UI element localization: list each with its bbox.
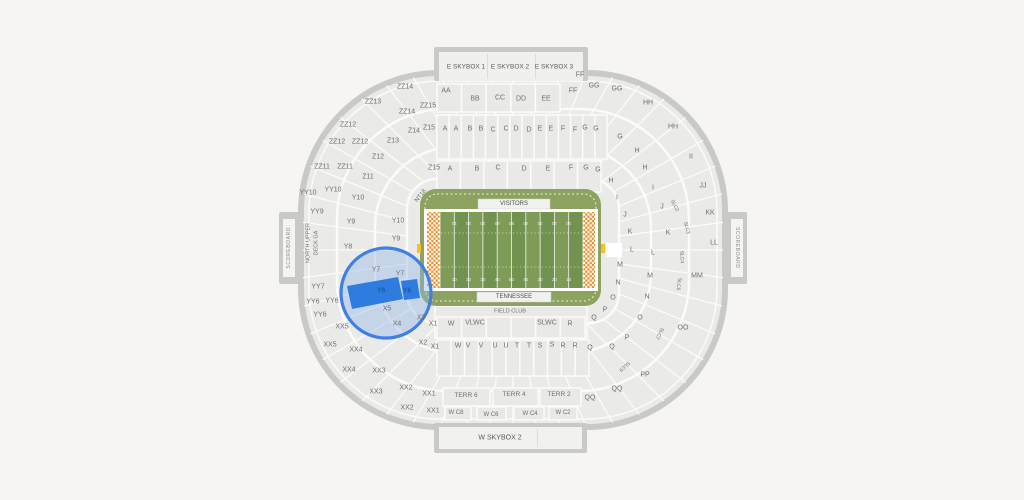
- section-label-f[interactable]: F: [561, 126, 565, 133]
- section-label-q[interactable]: Q: [591, 315, 596, 322]
- section-label-o[interactable]: O: [610, 295, 615, 302]
- section-label-hh[interactable]: HH: [643, 100, 653, 107]
- section-label-i[interactable]: I: [652, 185, 654, 192]
- section-label-xx2[interactable]: XX2: [399, 385, 412, 392]
- section-label-mm[interactable]: MM: [691, 273, 703, 280]
- section-label-p[interactable]: P: [603, 307, 608, 314]
- section-label-a[interactable]: A: [454, 126, 459, 133]
- section-label-yy10[interactable]: YY10: [299, 190, 316, 197]
- section-label-xx4[interactable]: XX4: [342, 367, 355, 374]
- section-label-y10[interactable]: Y10: [352, 195, 364, 202]
- section-label-g[interactable]: G: [595, 167, 600, 174]
- section-label-xx5[interactable]: XX5: [323, 342, 336, 349]
- section-label-vlwc[interactable]: VLWC: [465, 320, 485, 327]
- section-label-xx1[interactable]: XX1: [422, 391, 435, 398]
- section-label-z14[interactable]: Z14: [408, 128, 420, 135]
- section-label-m[interactable]: M: [617, 262, 623, 269]
- section-label-xx1[interactable]: XX1: [426, 408, 439, 415]
- section-label-o[interactable]: O: [637, 315, 642, 322]
- section-label-w[interactable]: W: [455, 343, 462, 350]
- section-label-a[interactable]: A: [443, 126, 448, 133]
- section-label-xx5[interactable]: XX5: [335, 324, 348, 331]
- section-label-b[interactable]: B: [475, 166, 480, 173]
- section-label-h[interactable]: H: [608, 178, 613, 185]
- section-label-slc3[interactable]: SLC3: [682, 221, 690, 234]
- section-label-oo[interactable]: OO: [678, 325, 689, 332]
- section-label-g[interactable]: G: [617, 134, 622, 141]
- section-label-n[interactable]: N: [644, 294, 649, 301]
- section-label-d[interactable]: D: [513, 126, 518, 133]
- section-label-zz14[interactable]: ZZ14: [397, 84, 413, 91]
- section-label-slc5[interactable]: SLC5: [675, 277, 682, 290]
- section-label-pp[interactable]: PP: [640, 372, 649, 379]
- section-label-x4[interactable]: X4: [393, 321, 402, 328]
- section-label-ii[interactable]: II: [689, 154, 693, 161]
- section-label-u[interactable]: U: [492, 343, 497, 350]
- section-label-p[interactable]: P: [625, 335, 630, 342]
- section-label-q[interactable]: Q: [587, 345, 592, 352]
- section-label-n[interactable]: N: [615, 280, 620, 287]
- section-label-gg[interactable]: GG: [589, 83, 600, 90]
- section-label-i[interactable]: I: [616, 195, 618, 202]
- seating-chart-stage: 101020203030404050504040303020201010 E S…: [0, 0, 1024, 500]
- section-label-slc9[interactable]: SLC9: [618, 360, 630, 372]
- section-label-w[interactable]: W: [448, 321, 455, 328]
- section-label-yy6[interactable]: YY6: [306, 299, 319, 306]
- section-labels-layer: ZZ14ZZ13ZZ14ZZ15ZZ12ZZ12ZZ12ZZ11ZZ11YY10…: [0, 0, 1024, 500]
- section-label-y8[interactable]: Y8: [344, 244, 353, 251]
- section-label-zz11[interactable]: ZZ11: [337, 164, 353, 171]
- section-label-r[interactable]: R: [572, 343, 577, 350]
- section-label-slc4[interactable]: SLC4: [678, 251, 683, 264]
- section-label-ff[interactable]: FF: [569, 88, 578, 95]
- section-label-x1[interactable]: X1: [431, 344, 440, 351]
- section-label-s[interactable]: S: [538, 343, 543, 350]
- section-label-cc[interactable]: CC: [495, 95, 505, 102]
- selected-section-label-y6[interactable]: Y6: [377, 288, 386, 295]
- section-label-xx4[interactable]: XX4: [349, 347, 362, 354]
- section-label-zz15[interactable]: ZZ15: [420, 103, 436, 110]
- section-label-slc7[interactable]: SLC7: [654, 326, 664, 339]
- section-label-f[interactable]: F: [569, 165, 573, 172]
- section-label-x2[interactable]: X2: [419, 340, 428, 347]
- section-label-hh[interactable]: HH: [668, 124, 678, 131]
- selected-section-label-y6[interactable]: Y6: [403, 288, 412, 295]
- section-label-qq[interactable]: QQ: [585, 395, 596, 402]
- section-label-e[interactable]: E: [538, 126, 543, 133]
- section-label-kk[interactable]: KK: [705, 210, 714, 217]
- section-label-x3[interactable]: X3: [417, 315, 426, 322]
- section-label-g[interactable]: G: [583, 165, 588, 172]
- field-club-label: FIELD CLUB: [494, 309, 526, 315]
- section-label-w-c8[interactable]: W C8: [449, 410, 464, 416]
- section-label-q[interactable]: Q: [609, 344, 614, 351]
- section-label-d[interactable]: D: [521, 166, 526, 173]
- section-label-z11[interactable]: Z11: [362, 174, 374, 181]
- section-label-l[interactable]: L: [630, 247, 634, 254]
- section-label-c[interactable]: C: [503, 126, 508, 133]
- section-label-w-c4[interactable]: W C4: [523, 411, 538, 417]
- section-label-yy9[interactable]: YY9: [310, 209, 323, 216]
- section-label-r[interactable]: R: [560, 343, 565, 350]
- section-label-ee[interactable]: EE: [541, 96, 550, 103]
- section-label-u[interactable]: U: [503, 343, 508, 350]
- section-label-z15[interactable]: Z15: [428, 165, 440, 172]
- section-label-yy10[interactable]: YY10: [324, 187, 341, 194]
- section-label-v[interactable]: V: [466, 343, 471, 350]
- section-label-c[interactable]: C: [495, 165, 500, 172]
- section-label-w-c2[interactable]: W C2: [556, 410, 571, 416]
- section-label-k[interactable]: K: [628, 229, 633, 236]
- section-label-b[interactable]: B: [479, 126, 484, 133]
- section-label-yy7[interactable]: YY7: [311, 284, 324, 291]
- section-label-e[interactable]: E: [549, 126, 554, 133]
- section-label-h[interactable]: H: [634, 148, 639, 155]
- section-label-yy6[interactable]: YY6: [313, 312, 326, 319]
- section-label-zz12[interactable]: ZZ12: [352, 139, 368, 146]
- section-label-xx3[interactable]: XX3: [369, 389, 382, 396]
- section-label-xx2[interactable]: XX2: [400, 405, 413, 412]
- section-label-terr-6[interactable]: TERR 6: [454, 393, 477, 400]
- section-label-dd[interactable]: DD: [516, 96, 526, 103]
- section-label-y9[interactable]: Y9: [392, 236, 401, 243]
- tennessee-endzone-label: TENNESSEE: [496, 294, 532, 300]
- section-label-x1[interactable]: X1: [429, 321, 438, 328]
- section-label-m[interactable]: M: [647, 273, 653, 280]
- section-label-bb[interactable]: BB: [470, 96, 479, 103]
- section-label-y7[interactable]: Y7: [372, 267, 381, 274]
- section-label-x5[interactable]: X5: [383, 306, 392, 313]
- section-label-z12[interactable]: Z12: [372, 154, 384, 161]
- section-label-zz13[interactable]: ZZ13: [365, 99, 381, 106]
- section-label-qq[interactable]: QQ: [612, 386, 623, 393]
- section-label-xx3[interactable]: XX3: [372, 368, 385, 375]
- section-label-ll[interactable]: LL: [710, 240, 718, 247]
- section-label-terr-4[interactable]: TERR 4: [502, 392, 525, 399]
- section-label-slc2[interactable]: SLC2: [669, 199, 679, 212]
- section-label-zz11[interactable]: ZZ11: [314, 164, 330, 171]
- section-label-gg[interactable]: GG: [612, 86, 623, 93]
- section-label-k[interactable]: K: [666, 230, 671, 237]
- section-label-f[interactable]: F: [573, 127, 577, 134]
- north-upper-deck-ga-label[interactable]: NORTH UPPER: [306, 223, 312, 263]
- section-label-z13[interactable]: Z13: [387, 138, 399, 145]
- visitors-endzone-label: VISITORS: [500, 201, 528, 207]
- section-label-terr-2[interactable]: TERR 2: [547, 392, 570, 399]
- section-label-d[interactable]: D: [526, 127, 531, 134]
- section-label-yy6[interactable]: YY6: [325, 298, 338, 305]
- section-label-y9[interactable]: Y9: [347, 219, 356, 226]
- section-label-w-c6[interactable]: W C6: [484, 412, 499, 418]
- section-label-s[interactable]: S: [550, 342, 555, 349]
- section-label-r[interactable]: R: [567, 321, 572, 328]
- section-label-g[interactable]: G: [582, 125, 587, 132]
- section-label-zz12[interactable]: ZZ12: [340, 122, 356, 129]
- section-label-l[interactable]: L: [651, 250, 655, 257]
- section-label-e[interactable]: E: [546, 166, 551, 173]
- section-label-j[interactable]: J: [623, 212, 627, 219]
- section-label-b[interactable]: B: [468, 126, 473, 133]
- section-label-z15[interactable]: Z15: [423, 125, 435, 132]
- section-label-jj[interactable]: JJ: [700, 183, 707, 190]
- section-label-zz14[interactable]: ZZ14: [399, 109, 415, 116]
- section-label-g[interactable]: G: [593, 126, 598, 133]
- section-label-v[interactable]: V: [479, 343, 484, 350]
- section-label-t[interactable]: T: [515, 343, 519, 350]
- section-label-t[interactable]: T: [527, 343, 531, 350]
- section-label-y7[interactable]: Y7: [396, 271, 405, 278]
- section-label-c[interactable]: C: [490, 127, 495, 134]
- section-label-a[interactable]: A: [448, 166, 453, 173]
- section-label-nt18[interactable]: NT18: [414, 188, 428, 203]
- section-label-zz12[interactable]: ZZ12: [329, 139, 345, 146]
- section-label-h[interactable]: H: [642, 165, 647, 172]
- section-label-ff[interactable]: FF: [576, 72, 585, 79]
- section-label-aa[interactable]: AA: [441, 88, 450, 95]
- north-upper-deck-ga-label[interactable]: DECK GA: [314, 231, 320, 256]
- section-label-slwc[interactable]: SLWC: [537, 320, 557, 327]
- section-label-y10[interactable]: Y10: [392, 218, 404, 225]
- section-label-j[interactable]: J: [660, 204, 664, 211]
